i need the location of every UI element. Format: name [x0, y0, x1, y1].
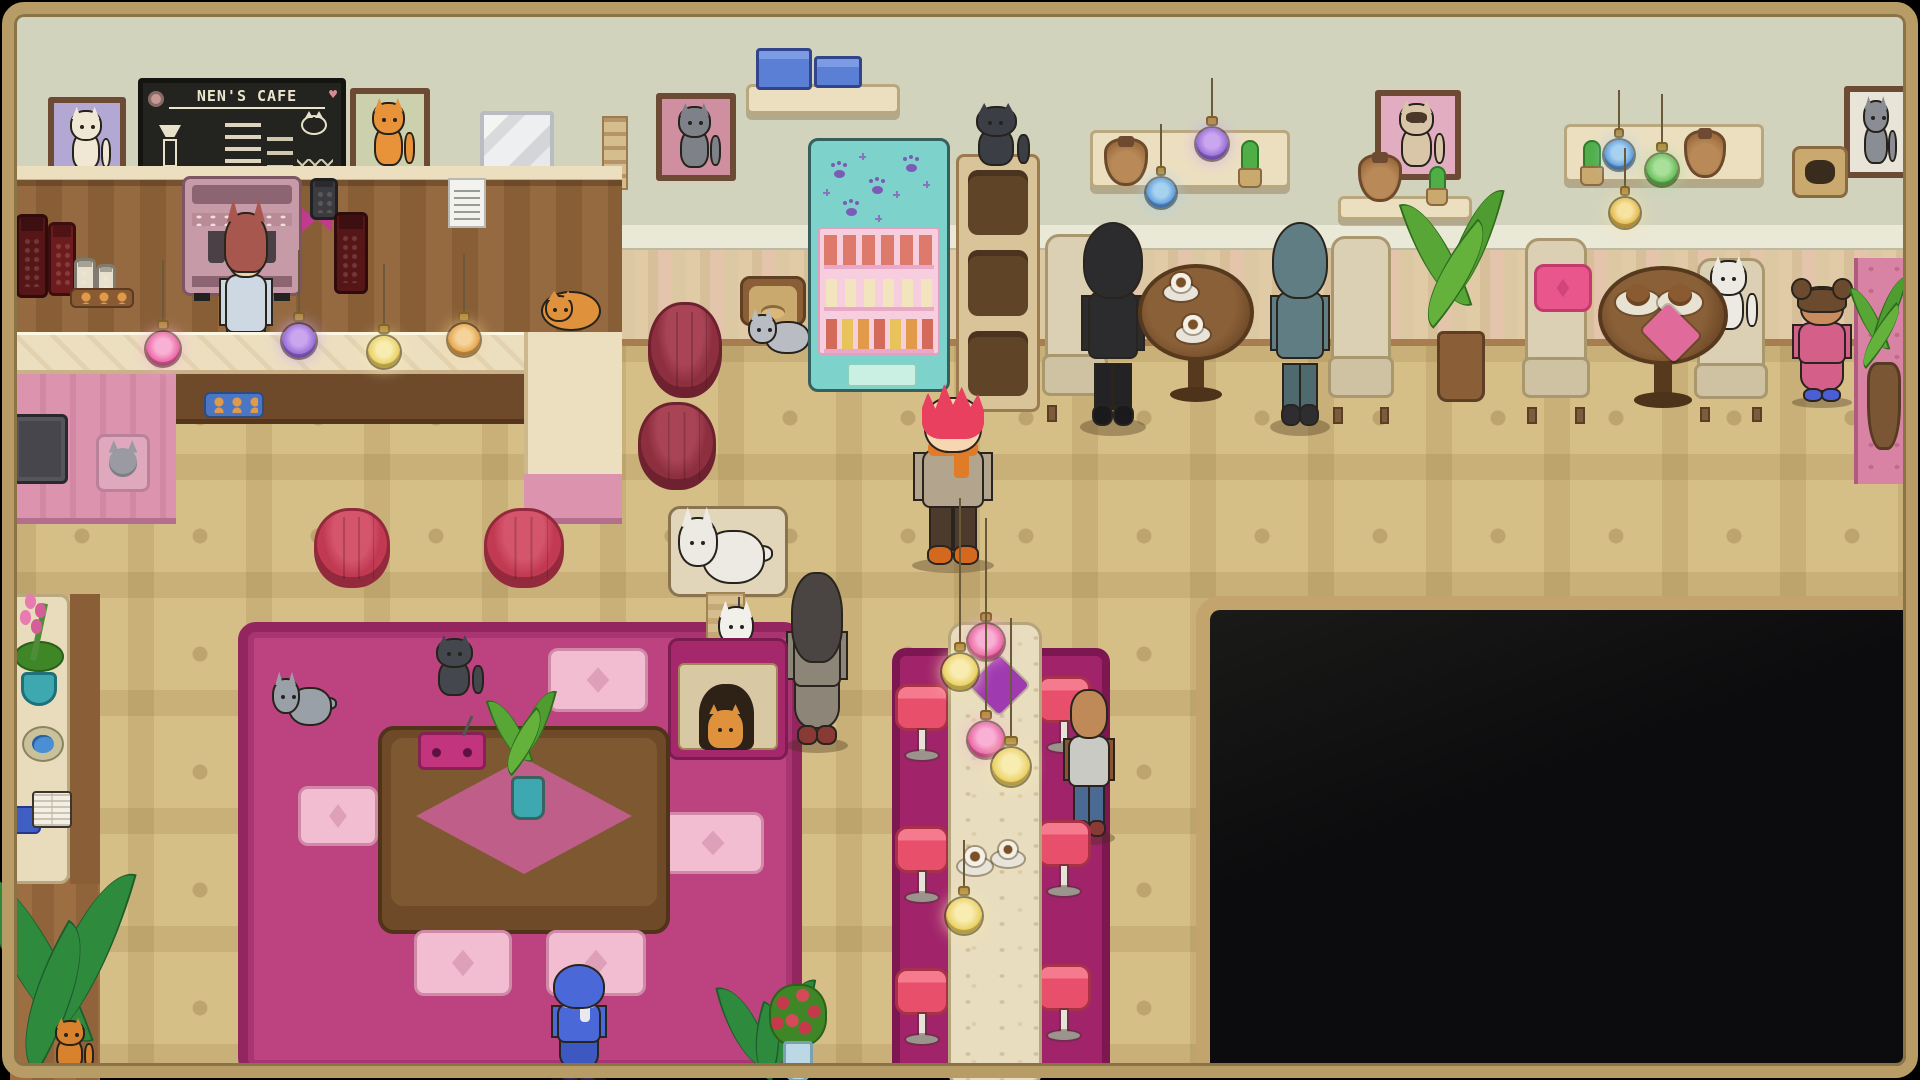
heart-icon: ♥ [328, 88, 338, 101]
cookie-plate [204, 392, 264, 418]
can-row [824, 229, 934, 269]
paw-print-icon [903, 157, 921, 173]
potted-plant-booths [1410, 192, 1512, 402]
bean-jar-3 [334, 212, 368, 294]
hanging-lantern-blue [1146, 124, 1176, 208]
customer-bald[interactable] [1058, 688, 1120, 840]
floor-cushion-3[interactable] [662, 812, 764, 874]
sparkle-icon [893, 191, 900, 198]
sparkle-icon [923, 181, 930, 188]
black-cat-on-rug[interactable] [430, 640, 482, 694]
paw-print-icon [843, 201, 861, 217]
painting-gray-cat-right [1844, 86, 1910, 178]
paw-print-icon [831, 163, 849, 179]
counter-lantern-amber [448, 254, 480, 356]
visitor-dark-hair[interactable] [780, 574, 854, 748]
pastry-tray [70, 288, 134, 308]
pastry-plate [1616, 284, 1660, 316]
bar-stool-3[interactable] [894, 968, 950, 1044]
bar-stool-6[interactable] [1036, 964, 1092, 1040]
storage-box [756, 48, 812, 90]
left-counter-edge [70, 594, 100, 884]
ottoman-maroon-2[interactable] [638, 402, 716, 490]
cafe-sign-text: NEN'S CAFE [169, 87, 325, 109]
customer-teal-hood[interactable] [1264, 228, 1336, 430]
orange-kitten[interactable] [50, 1022, 92, 1068]
pendant-gold-3 [946, 840, 982, 934]
bar-stool-5[interactable] [1036, 820, 1092, 896]
hanging-lantern-amber [1610, 148, 1640, 228]
ottoman-maroon[interactable] [648, 302, 722, 398]
unexplored-dark-room [1196, 596, 1910, 1070]
cat-tree[interactable] [668, 506, 788, 760]
rose-bouquet [764, 984, 832, 1080]
gray-cat-by-vending[interactable] [750, 314, 810, 352]
orange-cat-on-counter[interactable] [542, 290, 600, 332]
pendant-gold-2 [992, 618, 1030, 786]
visitor-blue-robe[interactable] [546, 968, 612, 1080]
empty-cubby-shelf[interactable] [956, 154, 1040, 412]
bean-jar-2 [48, 222, 76, 296]
drink-shelves [818, 227, 940, 355]
pink-pillow [1534, 264, 1592, 312]
tall-potted-plant-right [1856, 280, 1912, 450]
bar-stool-2[interactable] [894, 826, 950, 902]
gray-cat-on-rug[interactable] [274, 678, 332, 724]
floor-cushion-4[interactable] [414, 930, 512, 996]
counter-lantern-purple [282, 250, 316, 358]
ottoman-crimson-2[interactable] [484, 508, 564, 588]
orchid-pot [4, 594, 74, 706]
blue-bowl [22, 726, 64, 762]
booth-seat-a2[interactable] [1328, 236, 1394, 424]
sparkle-icon [859, 153, 866, 160]
grinder-doodle-icon [159, 125, 181, 137]
cactus-2 [1576, 140, 1604, 186]
dispenser-panel [847, 363, 917, 387]
orange-cat-in-cubby [704, 704, 747, 750]
cat-cafe-game-scene: NEN'S CAFE ♥ [0, 0, 1920, 1080]
painting-gray-cat [656, 93, 736, 181]
hanging-lantern-green [1646, 94, 1678, 186]
cat-doodle-icon [301, 115, 327, 135]
counter-lantern-pink [146, 260, 180, 366]
rosette-icon [148, 91, 164, 107]
table-plant [492, 692, 564, 820]
customer-reading-book[interactable] [8, 786, 72, 844]
radio[interactable] [418, 732, 486, 770]
cat-face-plaque [96, 434, 150, 492]
bar-stool[interactable] [894, 684, 950, 760]
floor-cushion-2[interactable] [298, 786, 378, 846]
bottle-row [824, 271, 934, 311]
coffee-cup-4 [992, 840, 1024, 868]
paw-print-icon [869, 179, 887, 195]
grinder-jar [310, 178, 338, 220]
ottoman-crimson[interactable] [314, 508, 390, 588]
vending-machine[interactable] [808, 138, 950, 392]
notice-paper [448, 178, 486, 228]
bean-jar [16, 214, 48, 298]
counter-monitor[interactable] [12, 414, 68, 484]
wall-cat-bed[interactable] [1792, 146, 1848, 198]
storage-box-2 [814, 56, 862, 88]
white-cat-on-platform [680, 516, 766, 582]
counter-lantern-gold [368, 264, 400, 368]
customer-girl-buns[interactable] [1786, 286, 1858, 404]
sparkle-icon [823, 189, 830, 196]
sparkle-icon [875, 215, 882, 222]
coffee-cup [1164, 272, 1198, 302]
hanging-lantern-purple [1196, 78, 1228, 160]
black-cat-on-shelf[interactable] [968, 108, 1028, 164]
coffee-cup-2 [1176, 314, 1210, 344]
cactus-pot [1234, 140, 1262, 188]
mixed-bottle-row [824, 313, 934, 353]
